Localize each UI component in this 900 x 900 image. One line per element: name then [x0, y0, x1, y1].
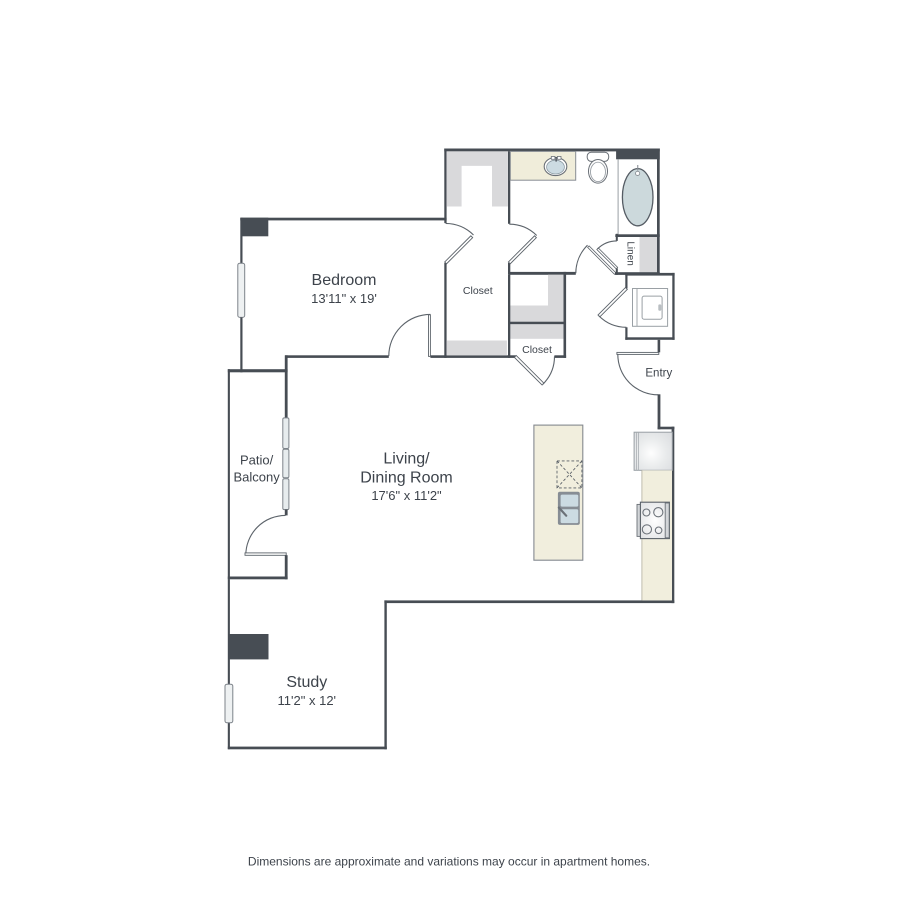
svg-text:Bedroom: Bedroom — [312, 272, 377, 289]
svg-text:Patio/: Patio/ — [240, 453, 274, 468]
svg-text:Entry: Entry — [645, 368, 672, 380]
svg-text:Dining Room: Dining Room — [360, 470, 452, 487]
svg-text:17'6" x 11'2": 17'6" x 11'2" — [371, 488, 442, 503]
svg-text:13'11" x 19': 13'11" x 19' — [311, 291, 377, 306]
svg-text:Balcony: Balcony — [233, 470, 280, 485]
svg-text:Linen: Linen — [625, 241, 636, 265]
svg-text:Living/: Living/ — [383, 451, 430, 468]
svg-text:Closet: Closet — [463, 285, 493, 297]
svg-text:Dimensions are approximate and: Dimensions are approximate and variation… — [248, 855, 650, 869]
svg-text:11'2" x 12': 11'2" x 12' — [278, 693, 337, 708]
svg-text:Closet: Closet — [522, 344, 552, 356]
svg-text:Study: Study — [286, 674, 327, 691]
